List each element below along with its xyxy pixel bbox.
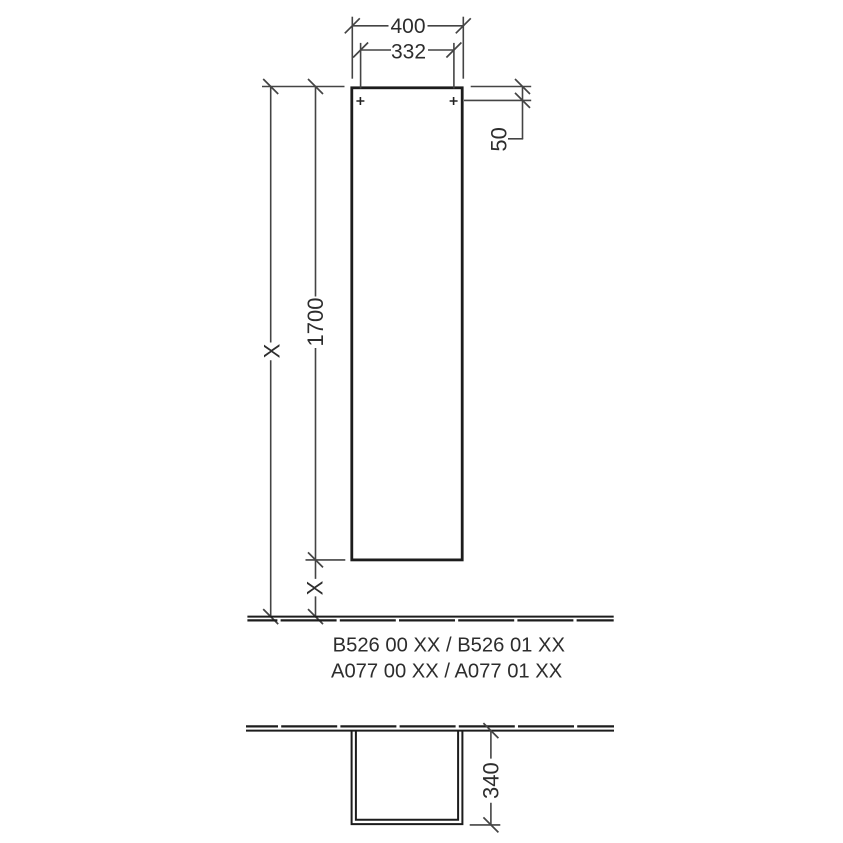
svg-text:50: 50 [486,127,511,151]
svg-text:B526 00 XX / B526 01 XX: B526 00 XX / B526 01 XX [333,634,566,656]
svg-text:X: X [260,343,285,358]
svg-text:1700: 1700 [303,298,328,347]
svg-text:A077 00 XX / A077 01 XX: A077 00 XX / A077 01 XX [331,661,563,683]
svg-text:340: 340 [479,762,504,799]
svg-text:X: X [303,580,328,595]
svg-text:400: 400 [390,15,425,38]
svg-text:332: 332 [391,40,426,63]
